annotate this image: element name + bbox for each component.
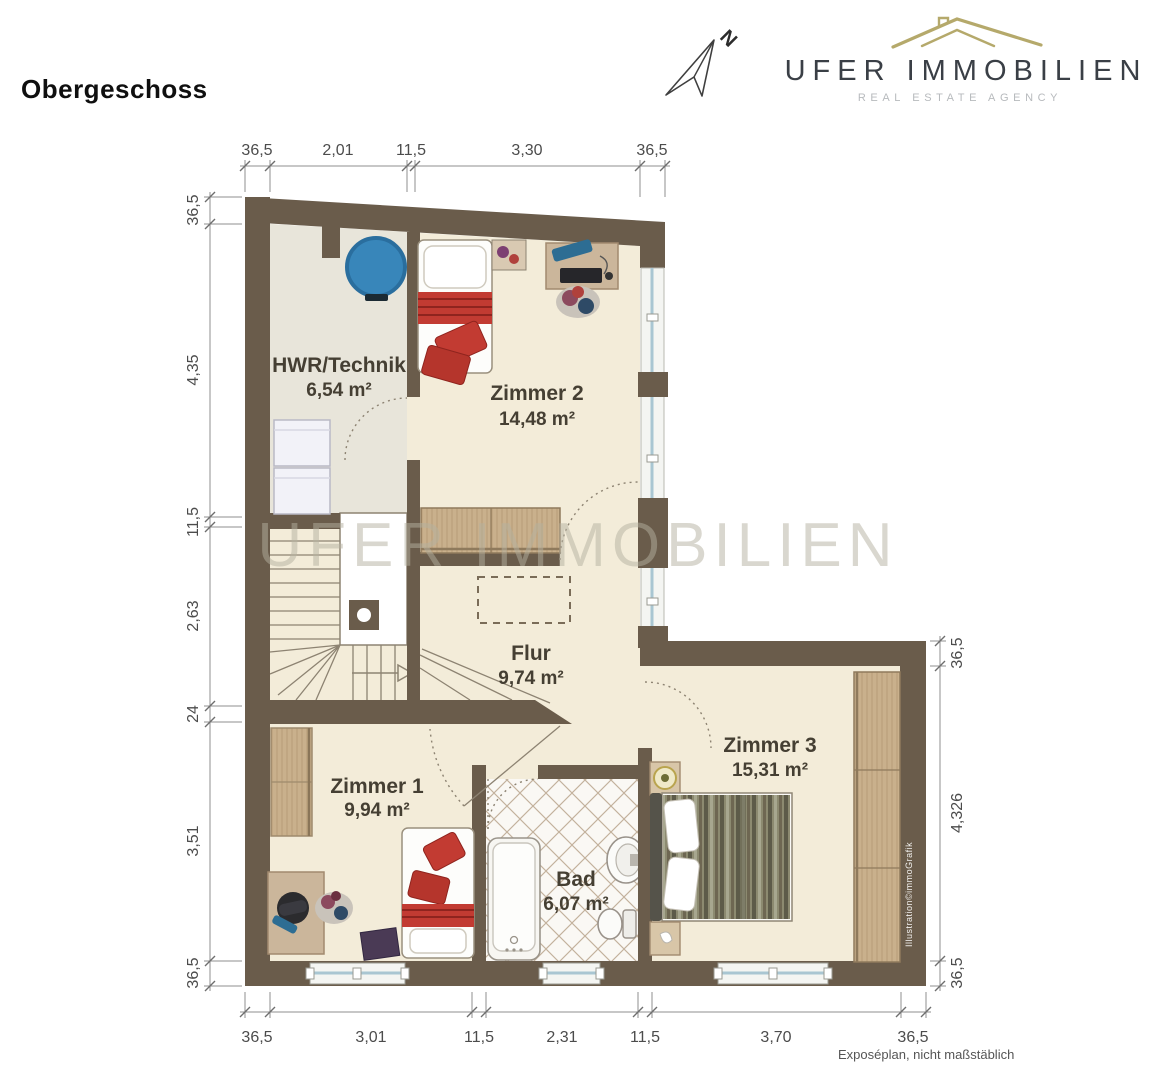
wardrobe-zimmer3	[854, 672, 900, 962]
floorplan-canvas: Obergeschoss N UFER IMMOBILIEN REAL ESTA…	[0, 0, 1173, 1080]
wall-art	[492, 240, 526, 270]
dim-chain-right: 36,5 4,326 36,5	[930, 636, 966, 991]
dim-bottom-6: 36,5	[897, 1029, 928, 1046]
label-zimmer3-name: Zimmer 3	[723, 734, 816, 757]
dim-bottom-3: 2,31	[546, 1029, 577, 1046]
rug-zimmer1	[360, 928, 400, 961]
dim-top-1: 2,01	[322, 142, 353, 159]
bed-zimmer2	[418, 240, 492, 385]
label-zimmer2-area: 14,48 m²	[499, 409, 575, 430]
floorplan-page: Obergeschoss N UFER IMMOBILIEN REAL ESTA…	[0, 0, 1173, 1080]
dim-top-4: 36,5	[636, 142, 667, 159]
appliance-dryer	[274, 468, 330, 514]
label-zimmer3-area: 15,31 m²	[732, 760, 808, 781]
dim-left-3: 2,63	[185, 600, 202, 631]
roof-icon	[893, 18, 1041, 47]
page-title: Obergeschoss	[21, 74, 208, 104]
nightstand-bottom	[650, 922, 680, 955]
wall-hwr-divider-lower	[407, 460, 420, 700]
window-strip-right	[638, 268, 668, 648]
label-flur-name: Flur	[511, 642, 551, 665]
bathtub	[488, 838, 540, 960]
label-zimmer1-area: 9,94 m²	[344, 800, 409, 821]
dim-bottom-5: 3,70	[760, 1029, 791, 1046]
windows-bottom	[306, 963, 832, 984]
dim-bottom-4: 11,5	[630, 1029, 660, 1046]
nightstand-top	[650, 762, 680, 795]
dim-right-2: 36,5	[949, 957, 966, 988]
compass-n-label: N	[715, 26, 741, 52]
appliance-washer	[274, 420, 330, 466]
dim-top-0: 36,5	[241, 142, 272, 159]
dim-bottom-2: 11,5	[464, 1029, 494, 1046]
label-flur-area: 9,74 m²	[498, 668, 563, 689]
dim-left-6: 36,5	[185, 957, 202, 988]
wall-stairs-zimmer1	[270, 700, 572, 724]
wall-stub-hwr	[322, 226, 340, 258]
label-zimmer1-name: Zimmer 1	[330, 775, 424, 798]
dim-left-1: 4,35	[185, 354, 202, 385]
desk-zimmer2	[546, 239, 618, 289]
label-zimmer2-name: Zimmer 2	[490, 382, 583, 405]
dim-chain-top: 36,5 2,01 11,5 3,30 36,5	[240, 142, 670, 197]
illustrator-credit: Illustration©immoGrafik	[904, 842, 914, 947]
brand-logo: N UFER IMMOBILIEN REAL ESTATE AGENCY	[666, 18, 1147, 104]
brand-name: UFER IMMOBILIEN	[785, 55, 1148, 87]
dim-chain-bottom: 36,5 3,01 11,5 2,31 11,5 3,70 36,5	[240, 992, 931, 1046]
label-bad-name: Bad	[556, 868, 596, 891]
bed-zimmer1	[402, 828, 474, 958]
dim-top-2: 11,5	[396, 142, 426, 159]
label-hwr-name: HWR/Technik	[272, 354, 406, 377]
dim-chain-left: 36,5 4,35 11,5 2,63 24 3,51 36,5	[185, 192, 242, 991]
window-bad	[539, 963, 604, 984]
dim-left-5: 3,51	[185, 825, 202, 856]
wall-left	[245, 197, 270, 986]
dim-right-0: 36,5	[949, 637, 966, 668]
label-bad-area: 6,07 m²	[543, 894, 608, 915]
compass-north-icon: N	[666, 26, 741, 96]
brand-subtitle: REAL ESTATE AGENCY	[858, 92, 1062, 104]
dresser-zimmer1	[271, 728, 312, 836]
dim-left-0: 36,5	[185, 194, 202, 225]
double-bed-zimmer3	[650, 793, 792, 921]
dim-left-2: 11,5	[185, 507, 202, 537]
clothes-pile-zimmer2	[556, 286, 600, 318]
dim-left-4: 24	[185, 705, 202, 723]
wall-bad-top	[538, 765, 652, 779]
dim-bottom-0: 36,5	[241, 1029, 272, 1046]
window-zimmer1	[306, 963, 409, 984]
desk-zimmer1	[268, 872, 324, 954]
scale-disclaimer: Exposéplan, nicht maßstäblich	[838, 1047, 1014, 1062]
window-zimmer3	[714, 963, 832, 984]
label-hwr-area: 6,54 m²	[306, 380, 371, 401]
dim-bottom-1: 3,01	[355, 1029, 386, 1046]
wall-zimmer3-top	[640, 641, 926, 666]
dim-right-1: 4,326	[949, 793, 966, 833]
watermark-text: UFER IMMOBILIEN	[257, 511, 898, 580]
dim-top-3: 3,30	[511, 142, 542, 159]
chimney	[349, 600, 379, 630]
